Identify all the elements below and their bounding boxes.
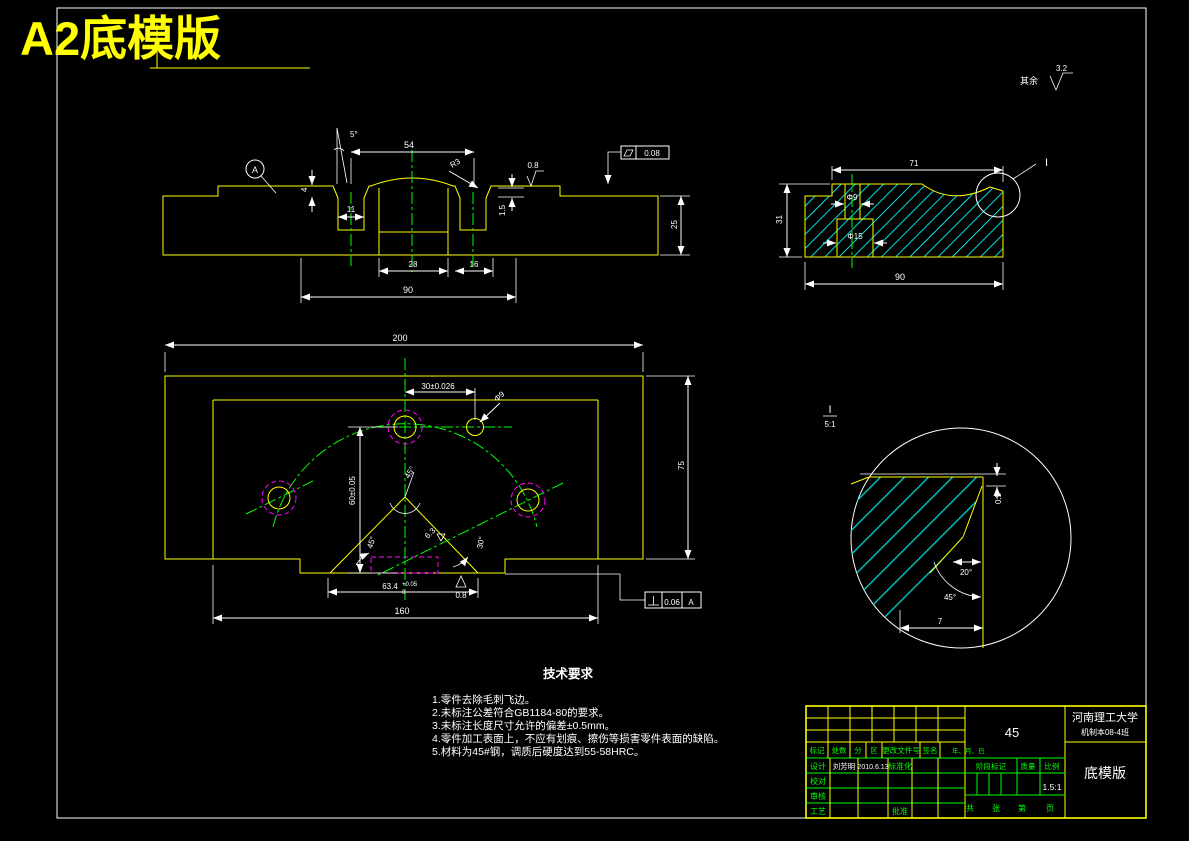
datum-label: A: [252, 165, 258, 175]
role-review: 审核: [810, 791, 826, 801]
svg-text:200: 200: [392, 333, 407, 343]
angle-45: 45°: [934, 562, 981, 602]
label-zone: 分: [854, 746, 862, 755]
svg-text:45°: 45°: [365, 535, 377, 549]
svg-text:90: 90: [895, 272, 905, 282]
tech-req-item: 3.未标注长度尺寸允许的偏差±0.5mm。: [432, 719, 615, 732]
perpendicularity-frame: 0.06 A: [505, 574, 701, 608]
svg-text:Φ9: Φ9: [847, 193, 858, 202]
material-value: 45: [1005, 725, 1019, 740]
dim-75: 75: [646, 376, 695, 559]
incline-roughness: 6.3: [423, 526, 445, 541]
dim-90-side: 90: [805, 262, 1003, 290]
svg-text:75: 75: [677, 461, 686, 470]
svg-text:4: 4: [300, 187, 309, 192]
role-approve: 批准: [892, 806, 908, 816]
dim-60: 60±0.05: [348, 427, 398, 573]
svg-text:7: 7: [938, 617, 943, 626]
hatched-body: [805, 184, 1003, 257]
roughness-icon: [1050, 73, 1073, 90]
sheet-total-label: 共: [966, 804, 974, 813]
surplus-roughness-value: 3.2: [1056, 64, 1068, 73]
svg-text:0.06: 0.06: [664, 598, 680, 607]
datum-a-flag: A: [246, 160, 276, 193]
angle-right-30: 30°: [453, 536, 486, 567]
perpendicularity-icon: [648, 596, 659, 605]
svg-text:160: 160: [394, 606, 409, 616]
svg-text:5:1: 5:1: [824, 420, 836, 429]
bottom-roughness: 0.8: [455, 576, 467, 600]
stage-label: 阶段标记: [976, 761, 1006, 771]
detail-view-label: I 5:1: [823, 404, 837, 429]
dim-draft-angle: 5°: [334, 128, 358, 184]
cad-drawing-sheet: A2底模版 其余 3.2 A 5° 54: [0, 0, 1189, 841]
svg-text:+0.05: +0.05: [402, 582, 418, 588]
svg-text:63.4: 63.4: [382, 582, 398, 591]
technical-requirements: 技术要求 1.零件去除毛刺飞边。 2.未标注公差符合GB1184-80的要求。 …: [432, 666, 724, 758]
dim-r3: R3: [449, 157, 479, 188]
flatness-tolerance-frame: 0.08: [608, 146, 669, 184]
tech-req-item: 5.材料为45#钢，调质后硬度达到55-58HRC。: [432, 745, 644, 758]
svg-text:30°: 30°: [475, 536, 486, 550]
svg-text:28: 28: [409, 260, 418, 269]
svg-text:Φ15: Φ15: [847, 232, 863, 241]
svg-text:I: I: [828, 404, 831, 416]
role-check: 校对: [810, 776, 826, 786]
tech-req-item: 2.未标注公差符合GB1184-80的要求。: [432, 706, 609, 719]
dim-0-5: 0.5: [986, 463, 1006, 504]
general-roughness-note: 其余 3.2: [1020, 64, 1073, 90]
dim-16: 16: [455, 258, 493, 277]
role-standard: 标准化: [888, 761, 912, 771]
svg-text:R3: R3: [449, 157, 463, 170]
dim-71: 71: [832, 159, 1003, 182]
svg-text:45°: 45°: [944, 593, 956, 602]
v-groove-right: [405, 497, 478, 573]
svg-text:16: 16: [470, 260, 479, 269]
sheet-page-label: 页: [1046, 804, 1054, 813]
front-section-view: A 5° 54 R3 4 11: [163, 128, 690, 303]
drawing-svg: A2底模版 其余 3.2 A 5° 54: [0, 0, 1189, 841]
svg-text:11: 11: [347, 205, 356, 214]
role-process: 工艺: [810, 807, 826, 816]
svg-text:1.5: 1.5: [498, 204, 507, 216]
label-sign: 签名: [923, 745, 938, 755]
svg-text:60±0.05: 60±0.05: [348, 476, 357, 505]
angle-left-45: 45°: [356, 535, 378, 565]
svg-text:30±0.026: 30±0.026: [421, 382, 455, 391]
sheet-no-label: 第: [1018, 803, 1026, 813]
dim-200: 200: [165, 333, 643, 372]
svg-text:25: 25: [670, 220, 679, 229]
label-mark: 标记: [810, 745, 825, 755]
svg-text:Φ9: Φ9: [492, 389, 506, 403]
svg-text:5°: 5°: [350, 130, 358, 139]
dim-25: 25: [660, 196, 690, 255]
svg-text:31: 31: [775, 215, 784, 224]
tech-req-title: 技术要求: [543, 666, 594, 681]
designer-name: 刘芳明: [833, 761, 856, 771]
flatness-icon: [624, 150, 633, 156]
page-title: A2底模版: [20, 12, 221, 65]
svg-text:0.5: 0.5: [994, 492, 1003, 504]
class-name: 机制本08-4班: [1081, 727, 1129, 737]
dim-phi9-leader: Φ9: [480, 389, 507, 422]
dim-28: 28: [379, 258, 448, 277]
label-count: 处数: [832, 745, 847, 755]
svg-text:6.3: 6.3: [423, 526, 438, 541]
svg-text:0.08: 0.08: [644, 149, 660, 158]
roughness-triangle-icon: [456, 576, 466, 587]
dim-7: 7: [900, 610, 983, 633]
svg-text:0.8: 0.8: [455, 591, 467, 600]
design-date: 2010.6.13: [857, 764, 888, 771]
label-region: 区: [870, 746, 878, 755]
role-design: 设计: [810, 761, 826, 771]
title-block: 45 河南理工大学 机制本08-4班 底模版 标记 处数 分 区 更改文件号 签…: [806, 706, 1146, 818]
top-face-roughness: 0.8: [527, 161, 544, 186]
detail-view-i: I 5:1 0.5 20° 45° 7: [823, 404, 1071, 648]
plan-view: 200 75 160 30±0.026 Φ9 60±0.05: [165, 333, 701, 624]
dim-4: 4: [300, 170, 312, 212]
dim-30: 30±0.026: [405, 382, 475, 420]
angle-20: 20°: [953, 562, 981, 577]
svg-text:71: 71: [910, 159, 919, 168]
svg-text:I: I: [1045, 157, 1048, 169]
drawing-border: [57, 8, 1146, 818]
university-name: 河南理工大学: [1072, 710, 1138, 724]
label-doc-no: 更改文件号: [882, 745, 920, 755]
side-section-view: I 71 Φ9 Φ15 90 31: [775, 157, 1048, 290]
roughness-icon: [527, 171, 544, 186]
svg-text:20°: 20°: [960, 568, 972, 577]
svg-text:0.8: 0.8: [527, 161, 539, 170]
tech-req-item: 4.零件加工表面上，不应有划痕、擦伤等损害零件表面的缺陷。: [432, 732, 724, 745]
label-date: 年、月、日: [952, 746, 985, 755]
tech-req-item: 1.零件去除毛刺飞边。: [432, 693, 535, 706]
svg-text:54: 54: [404, 140, 414, 150]
scale-label: 比例: [1045, 761, 1060, 771]
hatched-wedge: [851, 477, 983, 622]
svg-text:A: A: [688, 598, 694, 607]
weight-label: 质量: [1021, 761, 1037, 771]
svg-text:90: 90: [403, 285, 413, 295]
scale-value: 1.5:1: [1043, 782, 1062, 792]
surplus-label: 其余: [1020, 75, 1038, 86]
dim-1-5: 1.5: [498, 174, 524, 216]
part-name: 底模版: [1084, 765, 1126, 781]
sheet-sheets-label: 张: [992, 804, 1000, 813]
